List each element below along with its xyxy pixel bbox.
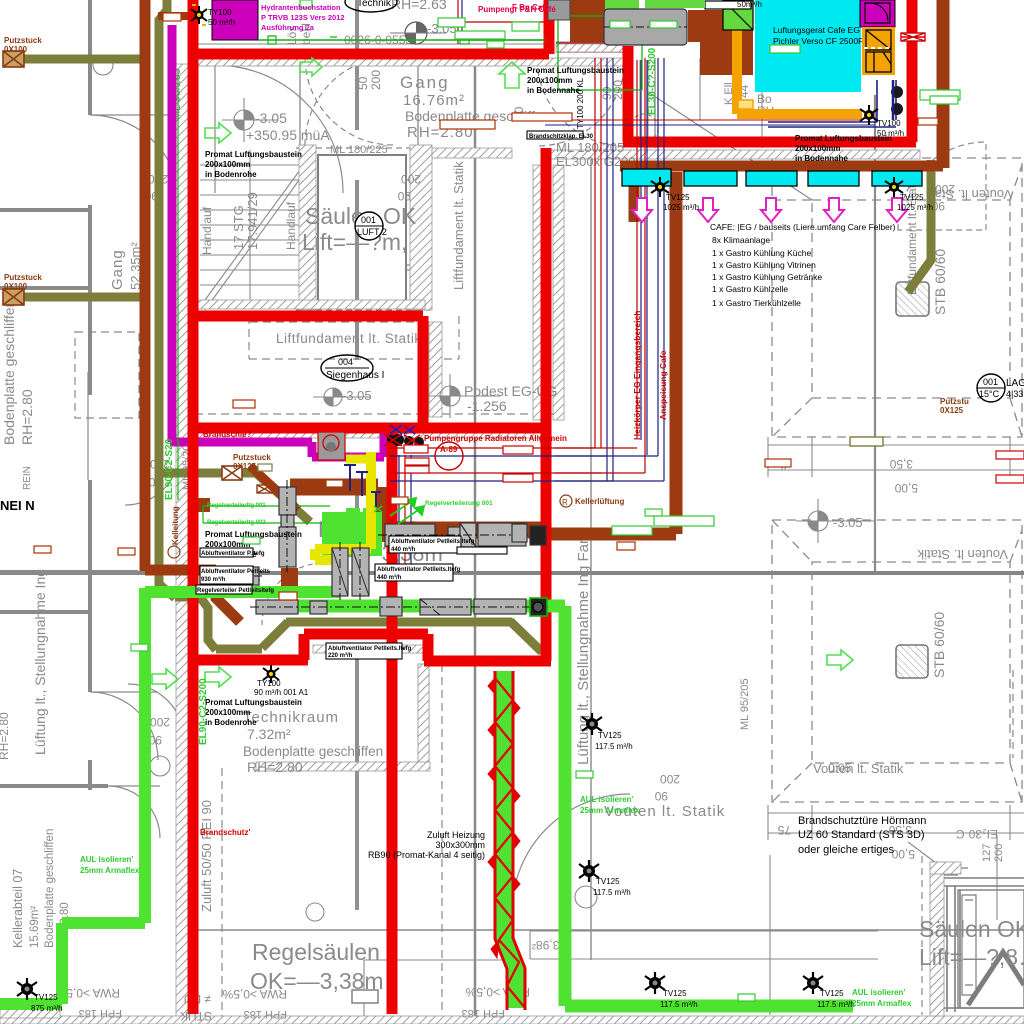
svg-text:Vouten lt. Statik: Vouten lt. Statik [813, 761, 904, 776]
svg-text:440 m³/h: 440 m³/h [391, 546, 416, 553]
svg-text:Putzstuck: Putzstuck [233, 453, 271, 462]
svg-text:FPH 183: FPH 183 [244, 1008, 287, 1020]
svg-text:90: 90 [654, 789, 668, 803]
svg-text:-1.256: -1.256 [467, 398, 507, 414]
svg-text:Brandschutztüre Hörmann: Brandschutztüre Hörmann [798, 815, 926, 827]
svg-text:200: 200 [401, 172, 421, 186]
svg-text:25mm Armaflex: 25mm Armaflex [80, 866, 140, 875]
svg-text:FPH 183: FPH 183 [79, 1007, 122, 1019]
svg-text:200: 200 [150, 715, 170, 729]
svg-text:AUL isolieren': AUL isolieren' [852, 988, 905, 997]
svg-text:Handlauf: Handlauf [200, 206, 214, 255]
svg-text:RWA >0,5%: RWA >0,5% [222, 987, 287, 1001]
svg-text:Anspeisung Cafe: Anspeisung Cafe [658, 350, 668, 420]
svg-text:RH=2.80: RH=2.80 [19, 389, 35, 445]
svg-text:Pumpengr F&H Café: Pumpengr F&H Café [478, 5, 556, 14]
svg-text:90 m³/h 001 A1: 90 m³/h 001 A1 [254, 688, 309, 697]
svg-text:117.5 m³/h: 117.5 m³/h [660, 1000, 698, 1009]
svg-text:200: 200 [660, 772, 680, 786]
svg-text:NEI N: NEI N [0, 498, 35, 513]
svg-text:50 m³/h: 50 m³/h [208, 18, 235, 27]
svg-text:50m³/h: 50m³/h [737, 0, 762, 9]
svg-text:Kelleitung: Kelleitung [171, 506, 180, 545]
svg-text:200x100mm: 200x100mm [205, 160, 250, 169]
svg-text:75: 75 [777, 823, 791, 837]
svg-text:200x100mm: 200x100mm [205, 708, 250, 717]
svg-text:TV125: TV125 [663, 989, 687, 998]
svg-text:Promat Luftungsbaustein: Promat Luftungsbaustein [205, 698, 302, 707]
svg-text:-3.05: -3.05 [255, 110, 287, 126]
svg-text:ML 180/205: ML 180/205 [556, 140, 624, 155]
svg-text:Regelverteilerung 001: Regelverteilerung 001 [425, 500, 493, 507]
svg-text:Abluftventilator Petlleits.lte: Abluftventilator Petlleits.ltefg [328, 646, 412, 652]
svg-text:ML 95/205: ML 95/205 [739, 678, 751, 730]
svg-text:Abluftventilator P.ltefg: Abluftventilator P.ltefg [201, 551, 265, 557]
svg-text:440 m³/h: 440 m³/h [377, 574, 402, 581]
svg-text:Lüftung lt., Stellungnahme Ing: Lüftung lt., Stellungnahme Ing [32, 569, 48, 755]
svg-text:300x300mm: 300x300mm [435, 840, 485, 850]
svg-text:TV100: TV100 [877, 119, 901, 128]
svg-text:EL90-C2-S20: EL90-C2-S20 [164, 438, 175, 500]
svg-text:930 m³/h: 930 m³/h [201, 576, 226, 583]
svg-text:Bodenplatte geschliffen: Bodenplatte geschliffen [243, 744, 383, 759]
svg-text:Ausführung 2a: Ausführung 2a [261, 23, 315, 32]
svg-text:in Bodennahe: in Bodennahe [527, 86, 580, 95]
svg-text:200x100mm: 200x100mm [795, 144, 840, 153]
svg-text:Pumpengruppe Radiatoren Allgem: Pumpengruppe Radiatoren Allgemein [424, 434, 567, 443]
svg-text:5,00: 5,00 [891, 847, 915, 861]
svg-text:Zuluft 50/50 REI 90: Zuluft 50/50 REI 90 [199, 800, 214, 912]
svg-text:117.5 m³/h: 117.5 m³/h [595, 742, 633, 751]
svg-text:Gang: Gang [109, 249, 126, 290]
svg-text:+350.95 müA: +350.95 müA [246, 127, 330, 143]
svg-text:Abluftventilator Petlleits: Abluftventilator Petlleits [201, 569, 271, 575]
svg-text:P TRVB 123S Vers 2012: P TRVB 123S Vers 2012 [261, 13, 345, 22]
svg-text:15.69m²: 15.69m² [29, 906, 41, 948]
svg-text:TY100: TY100 [208, 8, 232, 17]
svg-text:1 x Gastro Kühlzelle: 1 x Gastro Kühlzelle [712, 284, 788, 294]
svg-text:0.05: 0.05 [828, 761, 852, 775]
svg-text:Lift=—?,8…: Lift=—?,8… [919, 944, 1024, 970]
svg-text:Handlauf: Handlauf [284, 201, 298, 250]
svg-text:oder gleiche ertiges: oder gleiche ertiges [798, 844, 895, 856]
svg-text:1 x Gastro Kühlung Getränke: 1 x Gastro Kühlung Getränke [712, 272, 822, 282]
svg-text:Luftungsgerat Cafe EG: Luftungsgerat Cafe EG [773, 25, 860, 35]
svg-text:TV125: TV125 [596, 877, 620, 886]
svg-text:117.5 m³/h: 117.5 m³/h [593, 888, 631, 897]
svg-text:17.941/29: 17.941/29 [245, 192, 260, 250]
svg-text:1 x Gastro Kühlung Vitrinen: 1 x Gastro Kühlung Vitrinen [712, 260, 816, 270]
svg-text:875 m³/h: 875 m³/h [31, 1004, 63, 1013]
svg-text:Säulen OK: Säulen OK [919, 916, 1024, 942]
svg-text:200: 200 [993, 844, 1005, 862]
svg-text:TV125: TV125 [900, 193, 924, 202]
svg-text:CAFE: |EG / bauseits (Liere.um: CAFE: |EG / bauseits (Liere.umfang Care … [710, 222, 896, 232]
svg-text:LAGE: LAGE [1006, 378, 1024, 389]
svg-text:STB 60/60: STB 60/60 [931, 612, 947, 678]
svg-text:1025 m³/h: 1025 m³/h [897, 203, 933, 212]
svg-text:90: 90 [397, 189, 411, 203]
svg-text:EI₂30-C: EI₂30-C [956, 827, 998, 841]
svg-text:RH=2.80: RH=2.80 [247, 759, 303, 775]
svg-text:0X100: 0X100 [4, 45, 28, 54]
svg-text:-3.05: -3.05 [342, 388, 372, 403]
svg-text:Siegenhaus I: Siegenhaus I [326, 370, 384, 381]
svg-text:AUL isolieren': AUL isolieren' [580, 795, 633, 804]
svg-text:Regelverteilerltg 001: Regelverteilerltg 001 [207, 503, 266, 509]
svg-text:0X100: 0X100 [4, 282, 28, 291]
svg-text:16.76m²: 16.76m² [403, 92, 465, 109]
svg-text:50: 50 [356, 76, 370, 90]
svg-text:A-89: A-89 [440, 445, 458, 454]
svg-text:-3.05: -3.05 [833, 515, 863, 530]
svg-text:Promat Luftungsbaustein: Promat Luftungsbaustein [205, 150, 302, 159]
svg-text:004: 004 [338, 357, 353, 367]
svg-text:127: 127 [981, 844, 993, 862]
svg-text:200: 200 [369, 70, 383, 90]
svg-text:25mm Armaflex: 25mm Armaflex [580, 806, 640, 815]
svg-text:Kellerabteil 07: Kellerabteil 07 [11, 869, 25, 948]
svg-text:25mm Armaflex: 25mm Armaflex [852, 999, 912, 1008]
svg-text:RH=2.80: RH=2.80 [0, 712, 11, 760]
svg-text:Brandschutz': Brandschutz' [200, 828, 250, 837]
svg-text:Gang: Gang [400, 73, 450, 92]
svg-text:17 STG: 17 STG [231, 205, 246, 250]
svg-text:Zuluft Heizung: Zuluft Heizung [427, 830, 485, 840]
svg-text:ML 180/225: ML 180/225 [330, 144, 388, 156]
svg-text:3,50: 3,50 [889, 457, 913, 471]
svg-text:200: 200 [935, 182, 955, 196]
svg-text:Kellerlüftung: Kellerlüftung [575, 497, 624, 506]
svg-text:117.5 m³/h: 117.5 m³/h [817, 1000, 855, 1009]
svg-text:15°C: 15°C [979, 389, 1000, 399]
svg-text:Putzstuck: Putzstuck [4, 273, 42, 282]
svg-text:Promat Luftungsbaustein: Promat Luftungsbaustein [795, 134, 892, 143]
svg-text:Bodenplatte geschliffen: Bodenplatte geschliffen [44, 829, 56, 948]
svg-text:in Bodenrohe: in Bodenrohe [205, 718, 257, 727]
svg-text:Putzstu: Putzstu [940, 397, 969, 406]
svg-text:0X125: 0X125 [233, 462, 257, 471]
svg-text:0X125: 0X125 [940, 406, 964, 415]
svg-text:Liftfundament lt. Statik: Liftfundament lt. Statik [276, 331, 422, 346]
svg-text:7.32m²: 7.32m² [247, 726, 291, 742]
svg-text:RH=2.63: RH=2.63 [391, 0, 447, 12]
svg-text:TV125: TV125 [598, 731, 622, 740]
svg-text:EL90-C2-S200: EL90-C2-S200 [198, 678, 209, 745]
svg-text:Regelverteiler Petlleitsltefg: Regelverteiler Petlleitsltefg [197, 588, 274, 594]
svg-text:Heizkörper EG Eingangsbereich: Heizkörper EG Eingangsbereich [632, 311, 642, 440]
svg-text:1 x Gastro Kühlung Küche: 1 x Gastro Kühlung Küche [712, 248, 812, 258]
svg-text:Liftfundament lt. Statik: Liftfundament lt. Statik [451, 161, 466, 290]
svg-text:R: R [562, 498, 568, 507]
svg-text:Brandschie?: Brandschie? [203, 430, 252, 439]
svg-text:EL30-C?-S200: EL30-C?-S200 [647, 47, 658, 115]
svg-text:Putzstuck: Putzstuck [4, 36, 42, 45]
svg-text:5,00: 5,00 [894, 481, 918, 495]
svg-text:Abluftventilator Petlleits.lte: Abluftventilator Petlleits.ltefg [391, 539, 475, 545]
svg-text:REIN: REIN [22, 466, 33, 490]
svg-text:1025 m³/h: 1025 m³/h [663, 203, 699, 212]
svg-text:FPH 183: FPH 183 [462, 1007, 505, 1019]
svg-text:1 x Gastro Tierkühlzelle: 1 x Gastro Tierkühlzelle [712, 298, 801, 308]
svg-text:4|33: 4|33 [1006, 389, 1023, 399]
svg-text:Technik: Technik [357, 0, 392, 9]
svg-text:Technikraum: Technikraum [243, 709, 339, 726]
svg-text:Regelsäulen: Regelsäulen [252, 939, 380, 965]
svg-text:in Bodenrohe: in Bodenrohe [205, 170, 257, 179]
svg-text:001: 001 [361, 215, 376, 225]
svg-text:200x100mm: 200x100mm [527, 76, 572, 85]
svg-text:TV125: TV125 [820, 989, 844, 998]
svg-text:Promat Luftungsbaustein: Promat Luftungsbaustein [527, 66, 624, 75]
svg-text:Lift=—?m,: Lift=—?m, [302, 229, 407, 255]
svg-text:8x Klimaanlage: 8x Klimaanlage [712, 235, 770, 245]
svg-text:220 m³/h: 220 m³/h [328, 652, 353, 659]
svg-text:TV125: TV125 [34, 993, 58, 1002]
svg-text:Bodenplatte geschliffen: Bodenplatte geschliffen [1, 300, 17, 445]
svg-text:Regelverteilerltg 002: Regelverteilerltg 002 [207, 520, 266, 526]
svg-text:TY100: TY100 [257, 679, 281, 688]
svg-text:Abluftventilator Petlleits.lte: Abluftventilator Petlleits.ltefg [377, 567, 461, 573]
svg-text:001: 001 [983, 377, 998, 387]
svg-text:RB90 (Promat-Kanal 4 seitig): RB90 (Promat-Kanal 4 seitig) [368, 850, 485, 860]
svg-text:LUFT 2: LUFT 2 [357, 227, 387, 237]
svg-text:Hydrantenbuchstation: Hydrantenbuchstation [261, 3, 341, 12]
svg-text:Brandschltzklap. EL30: Brandschltzklap. EL30 [529, 134, 594, 140]
svg-text:TV125: TV125 [666, 193, 690, 202]
svg-text:AUL isolieren': AUL isolieren' [80, 855, 133, 864]
svg-text:Vouten lt. Statik: Vouten lt. Statik [917, 547, 1008, 562]
svg-text:UZ 60 Standard (STS 3D): UZ 60 Standard (STS 3D) [798, 829, 925, 841]
svg-text:in Bodennahe: in Bodennahe [795, 154, 848, 163]
